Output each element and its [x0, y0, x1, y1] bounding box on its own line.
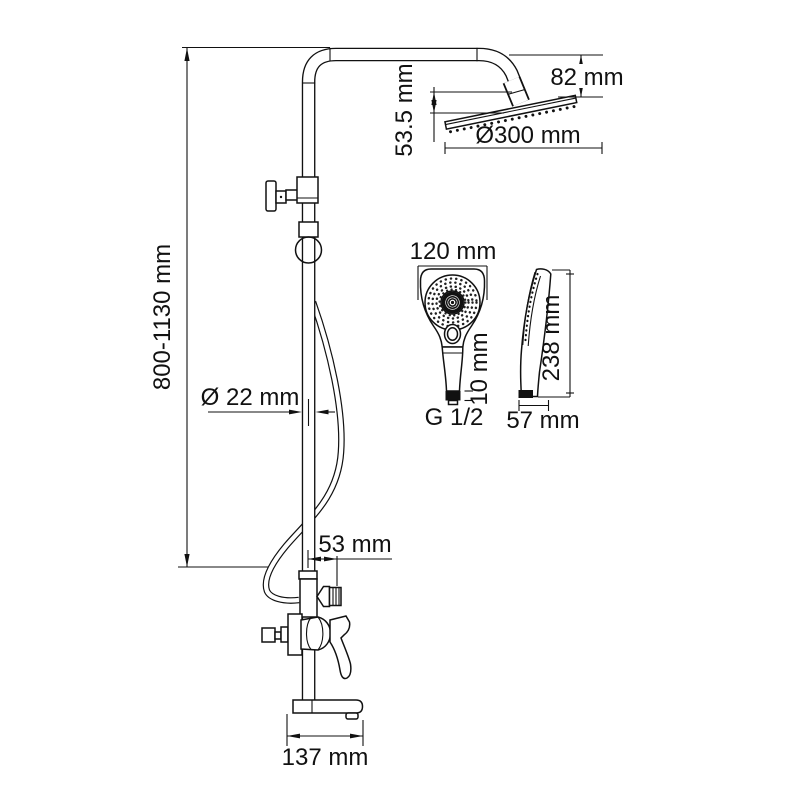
- hand-shower-side-view: 238 mm 57 mm: [506, 269, 579, 434]
- tub-spout: [293, 700, 363, 719]
- inlet-washer: [281, 627, 288, 642]
- inlet-neck: [275, 632, 281, 639]
- shower-technical-drawing: 800-1130 mm: [0, 0, 800, 800]
- dim-head-height-offset: 82 mm: [509, 55, 624, 97]
- diverter-sleeve: [299, 571, 317, 579]
- mixer-plate: [288, 614, 302, 655]
- hand-width-label: 120 mm: [410, 238, 497, 265]
- spout-body: [293, 700, 363, 713]
- bracket-sleeve: [297, 177, 318, 203]
- head-diameter-label: Ø300 mm: [475, 122, 580, 149]
- hand-shower-center: [441, 291, 464, 314]
- head-height-offset-label: 82 mm: [550, 64, 623, 91]
- dim-spout-length: 137 mm: [282, 714, 369, 771]
- spout-length-label: 137 mm: [282, 744, 369, 771]
- hand-depth-label: 57 mm: [506, 407, 579, 434]
- arrow-down: [184, 554, 189, 567]
- mixer-cartridge: [301, 617, 331, 650]
- hand-length-label: 238 mm: [538, 295, 565, 382]
- joint-sleeve: [299, 222, 318, 237]
- handle-connector: [446, 391, 461, 401]
- pipe-diameter-label: Ø 22 mm: [201, 384, 300, 411]
- dim-holder-offset: 53 mm: [308, 531, 392, 586]
- thread-label: G 1/2: [425, 404, 484, 431]
- diverter: [299, 571, 341, 617]
- arrow-up: [184, 48, 189, 61]
- inlet-knob: [262, 628, 275, 642]
- dim-head-diameter: Ø300 mm: [445, 122, 602, 154]
- diverter-body: [300, 579, 317, 617]
- height-range-label: 800-1130 mm: [149, 244, 176, 390]
- mixer-handle: [330, 616, 351, 679]
- holder-offset-label: 53 mm: [318, 531, 391, 558]
- head-arm-drop-label: 53.5 mm: [391, 63, 418, 156]
- diverter-cone: [317, 587, 330, 607]
- bracket-flange: [266, 181, 276, 211]
- side-connector: [519, 390, 534, 398]
- hand-shower-front-view: 120 mm 10 mm G: [410, 238, 497, 431]
- hand-connector-label: 10 mm: [466, 332, 493, 405]
- hand-shower-handle: [442, 347, 463, 391]
- bracket-arm: [286, 190, 298, 200]
- spout-aerator: [346, 713, 358, 719]
